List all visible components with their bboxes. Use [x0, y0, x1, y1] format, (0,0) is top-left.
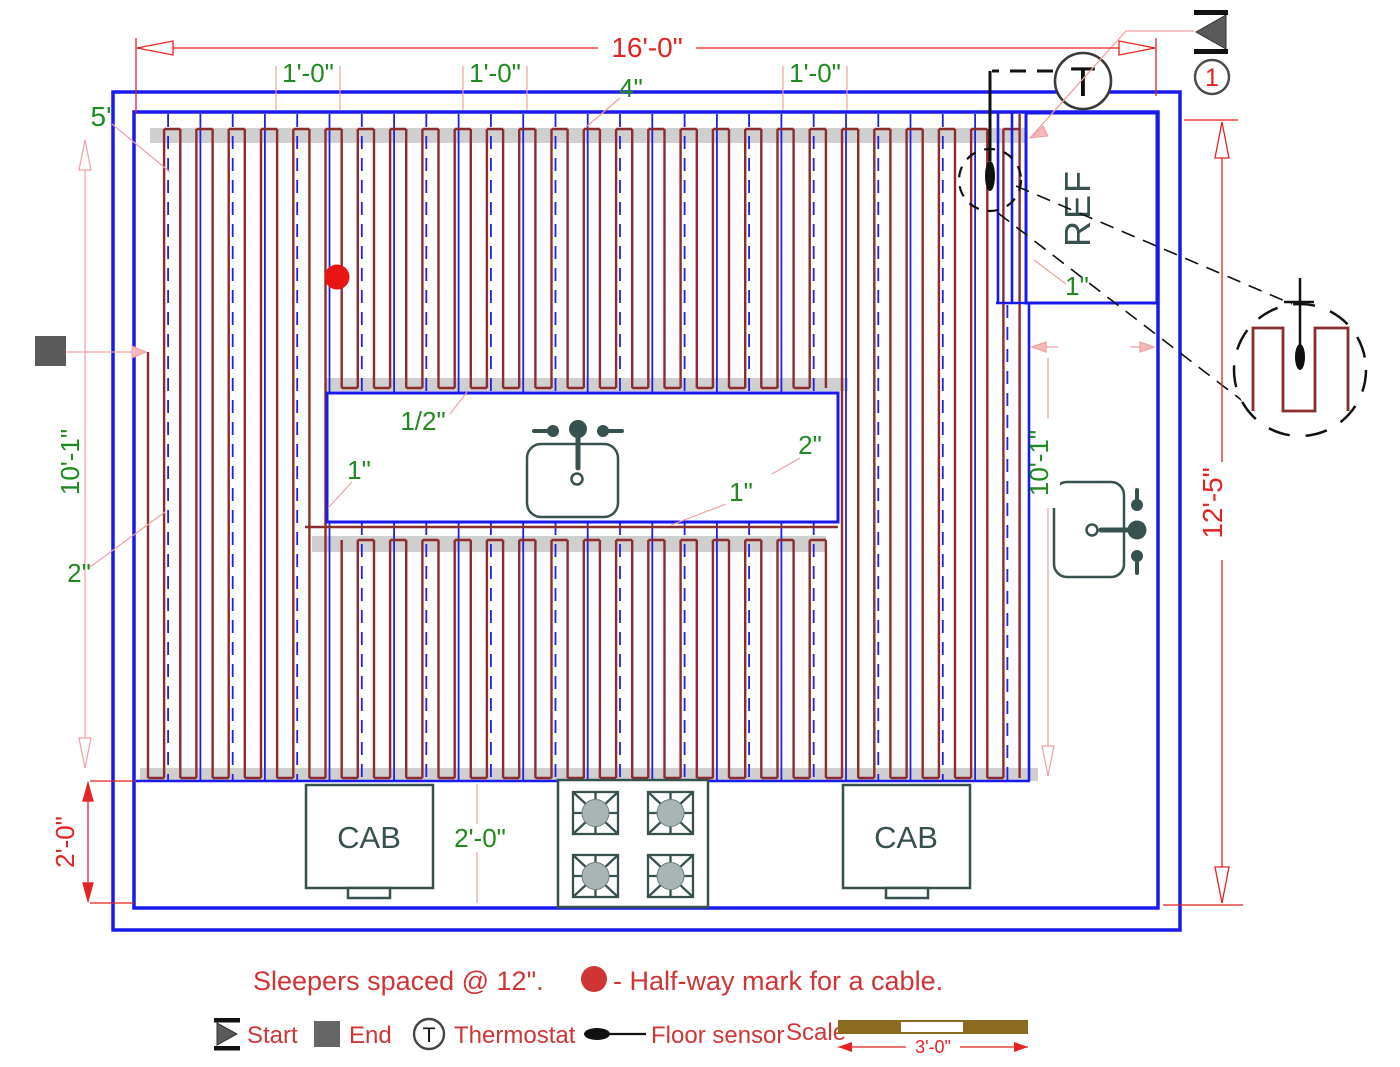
scale-dim-arrow-right	[1014, 1042, 1028, 1052]
start-icon-bar-bottom	[1194, 49, 1228, 54]
legend-start-icon	[217, 1023, 237, 1045]
cable-end-marker	[35, 336, 146, 366]
halfway-legend-dot	[581, 966, 607, 992]
end-icon	[35, 336, 66, 366]
floor-sensor-icon	[985, 161, 995, 191]
dim-text-bg	[1058, 331, 1130, 358]
cab-left-label: CAB	[337, 820, 401, 855]
stove-burner	[573, 855, 618, 897]
legend-floor-sensor-icon	[584, 1028, 610, 1040]
cabinet-handle	[886, 888, 928, 898]
dim-island-bottom-gap: 1"	[729, 477, 753, 507]
stove	[558, 780, 708, 907]
cabinet-handle	[348, 888, 390, 898]
legend-start-bar-top	[214, 1018, 240, 1023]
dim-left-gap: 2"	[67, 558, 91, 588]
dim-left-offset: 5'	[91, 101, 112, 132]
plan-drawing: REF CAB CAB	[0, 0, 1400, 1067]
dim-spacing-2: 1'-0"	[469, 58, 521, 88]
thermostat-symbol: T	[1070, 58, 1096, 105]
start-icon	[1196, 15, 1226, 49]
legend: Start End T Thermostat Floor sensor Scal…	[214, 1018, 1028, 1057]
dim-island-left-gap: 1"	[347, 455, 371, 485]
dim-spacing-3: 1'-0"	[789, 58, 841, 88]
dim-counter-depth-red: 2'-0"	[50, 816, 80, 868]
dim-spacing-1: 1'-0"	[282, 58, 334, 88]
halfway-mark-dot	[325, 265, 350, 290]
detail-sensor-tip	[1295, 344, 1305, 370]
dim-island-right-gap: 2"	[798, 430, 822, 460]
dim-left-height: 10'-1"	[55, 429, 85, 495]
start-icon-bar-top	[1194, 10, 1228, 15]
note-halfway: - Half-way mark for a cable.	[613, 966, 943, 996]
stove-burner	[648, 855, 693, 897]
stove-burner	[573, 792, 618, 834]
dim-counter-depth-green: 2'-0"	[454, 823, 506, 853]
dim-top-gap: 4"	[619, 73, 643, 103]
note-sleepers: Sleepers spaced @ 12".	[253, 966, 544, 996]
cab-right-label: CAB	[874, 820, 938, 855]
legend-thermostat-symbol: T	[423, 1024, 436, 1047]
legend-end-icon	[314, 1021, 340, 1047]
dim-ref-gap: 1"	[1065, 271, 1089, 301]
legend-thermostat-label: Thermostat	[454, 1022, 576, 1049]
right-sink	[1054, 482, 1147, 577]
ref-label: REF	[1057, 169, 1098, 247]
detail-number: 1	[1205, 64, 1219, 92]
dim-right-height: 10'-1"	[1024, 430, 1054, 496]
scale-dim-text: 3'-0"	[915, 1037, 951, 1057]
end-leader-arrow	[132, 346, 146, 358]
stove-burner	[648, 792, 693, 834]
legend-start-label: Start	[247, 1022, 298, 1049]
legend-end-label: End	[349, 1022, 392, 1049]
scale-bar-white-segment	[901, 1022, 963, 1032]
legend-scale-label: Scale	[786, 1019, 846, 1046]
dim-total-height: 12'-5"	[1197, 467, 1228, 538]
legend-floor-sensor-label: Floor sensor	[651, 1022, 784, 1049]
sleeper-strip-top	[150, 128, 1032, 143]
dim-total-width: 16'-0"	[611, 32, 682, 63]
cabinet-right: CAB	[843, 785, 970, 898]
floor-heating-plan: REF CAB CAB	[0, 0, 1400, 1067]
legend-start-bar-bottom	[214, 1046, 240, 1051]
cabinet-left: CAB	[306, 785, 433, 898]
dim-island-top-gap: 1/2"	[400, 406, 445, 436]
